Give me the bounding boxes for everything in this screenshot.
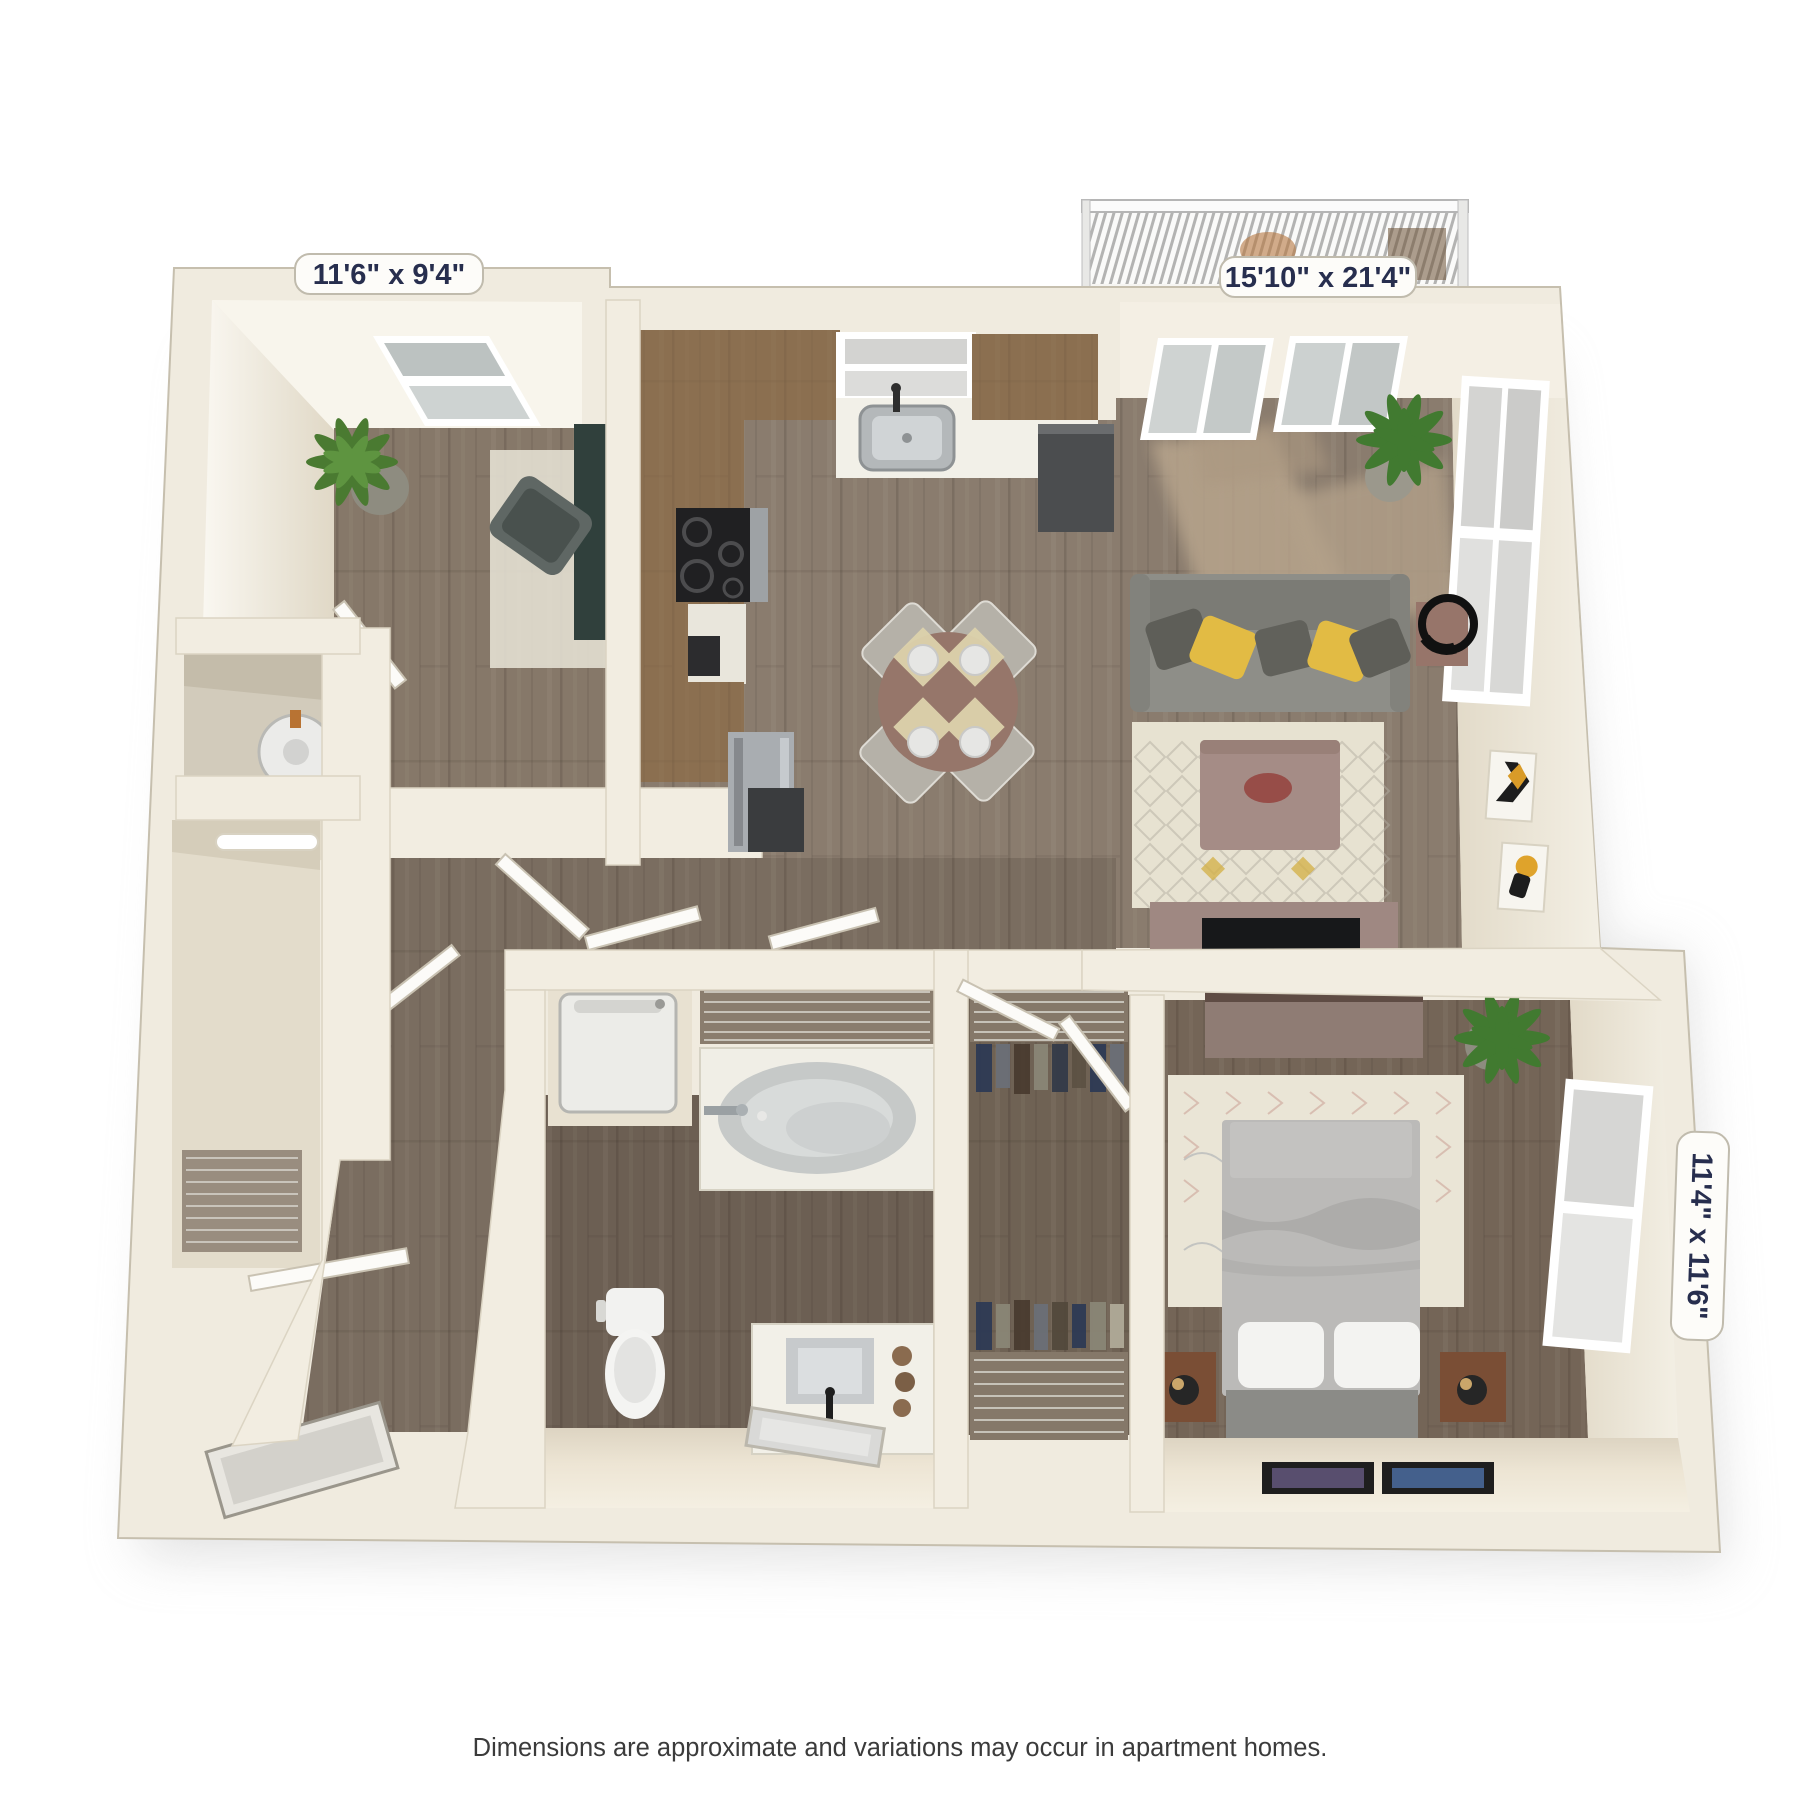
svg-text:11'4" x 11'6": 11'4" x 11'6" [1680, 1152, 1718, 1320]
svg-text:Dimensions are approximate and: Dimensions are approximate and variation… [473, 1734, 1328, 1762]
svg-text:15'10" x 21'4": 15'10" x 21'4" [1225, 262, 1411, 294]
svg-text:11'6" x 9'4": 11'6" x 9'4" [313, 259, 466, 291]
